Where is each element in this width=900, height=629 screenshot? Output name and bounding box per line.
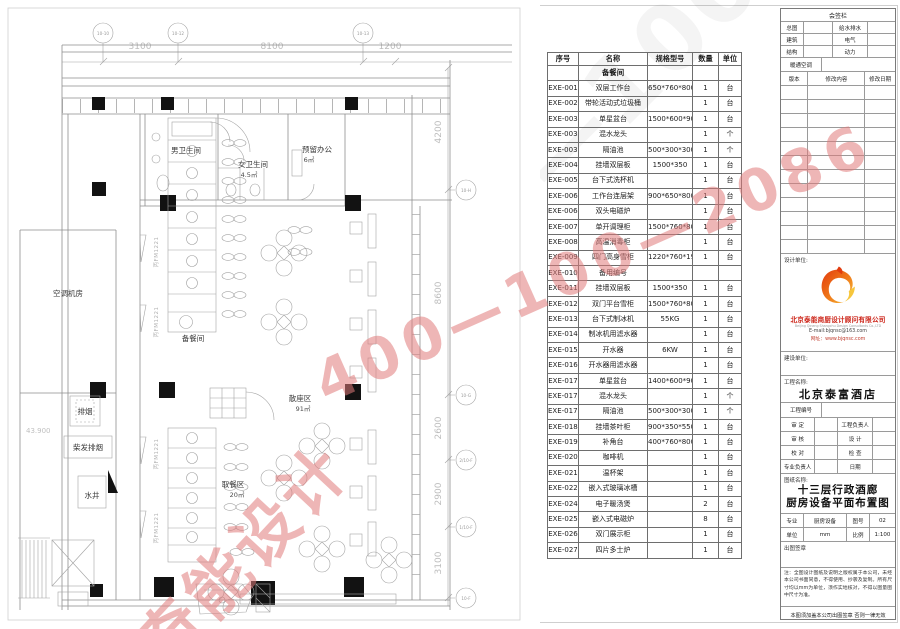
equipment-row: EXE-017单星盆台1400*600*9001台 bbox=[548, 373, 742, 388]
room-label-pantry: 备餐间 bbox=[182, 333, 205, 343]
revision-row bbox=[781, 100, 895, 114]
copyright-notes: 注：全图设计图纸及说明之版权属于本公司，未经本公司书面同意，不得使用、抄袭及复制… bbox=[784, 570, 892, 600]
client-label: 建设单位: bbox=[781, 352, 895, 362]
project-no-label: 工程编号 bbox=[781, 403, 822, 417]
equipment-row: 备餐间 bbox=[548, 66, 742, 81]
meta-row: 单位mm比例1:100 bbox=[781, 528, 895, 542]
revision-col-label: 版本 bbox=[781, 72, 808, 85]
revision-row bbox=[781, 240, 895, 254]
dim-label: 3100 bbox=[434, 551, 444, 574]
equipment-row: EXE-016开水器用滤水器1台 bbox=[548, 358, 742, 373]
equipment-row: EXE-024电子暖汤煲2台 bbox=[548, 496, 742, 511]
meta-row: 专业厨房设备图号02 bbox=[781, 514, 895, 528]
equipment-row: EXE-013台下式制冰机55KG1台 bbox=[548, 312, 742, 327]
dim-label: 2600 bbox=[434, 416, 444, 439]
revision-col-label: 修改日期 bbox=[865, 72, 895, 85]
table-header-row: 序号名称规格型号数量单位 bbox=[548, 53, 742, 66]
validity-text: 本图须加盖本公司出图签章 否则一律无效 bbox=[790, 612, 885, 619]
company-logo bbox=[781, 265, 895, 313]
fire-door-label: 丙FM1221 bbox=[153, 237, 160, 268]
equipment-row: EXE-006工作台连层架900*650*8001台 bbox=[548, 189, 742, 204]
equipment-row: EXE-005台下式洗杯机1台 bbox=[548, 173, 742, 188]
validity-row: 本图须加盖本公司出图签章 否则一律无效 bbox=[781, 607, 895, 623]
drawing-label: 图纸名称: bbox=[781, 474, 895, 484]
drawing-canvas: 10-10 10-12 10-13 3100 8100 1200 10-H 10… bbox=[0, 0, 900, 629]
structural-columns bbox=[90, 97, 364, 605]
seal-label: 出图签章 bbox=[781, 542, 895, 552]
floor-plan-drawing: 10-10 10-12 10-13 3100 8100 1200 10-H 10… bbox=[0, 0, 540, 629]
equipment-row: EXE-020咖啡机1台 bbox=[548, 450, 742, 465]
signoff-header: 会签栏 bbox=[781, 9, 895, 22]
signoff-row: 建筑电气 bbox=[781, 34, 895, 46]
revision-row bbox=[781, 128, 895, 142]
approval-row: 专业负责人日期 bbox=[781, 460, 895, 474]
dim-label: 1200 bbox=[379, 42, 402, 52]
dim-label: 4200 bbox=[434, 120, 444, 143]
schedule-col-header: 序号 bbox=[548, 53, 579, 66]
company-name-en: Beijing Qineng Shangchu Design Consultan… bbox=[787, 324, 890, 328]
revision-row bbox=[781, 170, 895, 184]
signoff-row: 结构动力 bbox=[781, 46, 895, 58]
equipment-row: EXE-007单开调理柜1500*760*8001台 bbox=[548, 219, 742, 234]
equipment-row: EXE-017b隔油池500*300*3001个 bbox=[548, 404, 742, 419]
room-label-office: 预留办公 bbox=[302, 144, 332, 154]
equipment-row: EXE-001双层工作台650*760*8001台 bbox=[548, 81, 742, 96]
schedule-col-header: 规格型号 bbox=[648, 53, 693, 66]
equipment-row: EXE-017a混水龙头1个 bbox=[548, 389, 742, 404]
signoff-row: 总图给水排水 bbox=[781, 22, 895, 34]
room-area-label: 20㎡ bbox=[230, 490, 245, 499]
signoff-rows: 总图给水排水建筑电气结构动力 bbox=[781, 22, 895, 58]
revision-row bbox=[781, 114, 895, 128]
design-unit-label: 设计单位: bbox=[781, 254, 895, 264]
schedule-col-header: 数量 bbox=[693, 53, 719, 66]
hvac-row: 暖通空调 bbox=[781, 58, 895, 72]
equipment-row: EXE-011挂墙双层板1500*3501台 bbox=[548, 281, 742, 296]
room-label-ac-room: 空调机房 bbox=[53, 288, 83, 298]
design-unit-section: 设计单位: 北京泰能商厨设计顾问有限公司 Beijing Qineng Shan… bbox=[781, 254, 895, 352]
dim-label: 2900 bbox=[434, 482, 444, 505]
fire-door-label: 丙FM1221 bbox=[153, 439, 160, 470]
notes-section: 注：全图设计图纸及说明之版权属于本公司，未经本公司书面同意，不得使用、抄袭及复制… bbox=[781, 568, 895, 607]
dim-label: 8600 bbox=[434, 281, 444, 304]
schedule-col-header: 单位 bbox=[719, 53, 742, 66]
equipment-row: EXE-003单星盆台1500*600*9001台 bbox=[548, 112, 742, 127]
equipment-row: EXE-019补角台400*760*8001台 bbox=[548, 435, 742, 450]
equipment-schedule-table: 序号名称规格型号数量单位 备餐间EXE-001双层工作台650*760*8001… bbox=[547, 52, 742, 559]
equipment-row: EXE-004挂墙双层板1500*3501台 bbox=[548, 158, 742, 173]
grid-bubble: 1/10-F bbox=[459, 525, 473, 530]
revision-row bbox=[781, 86, 895, 100]
revision-row bbox=[781, 184, 895, 198]
room-label-diesel-exhaust: 柴发排烟 bbox=[73, 442, 103, 452]
dim-label: 8100 bbox=[261, 42, 284, 52]
approval-row: 校 对检 查 bbox=[781, 446, 895, 460]
equipment-row: EXE-018挂墙茶叶柜900*350*5501台 bbox=[548, 419, 742, 434]
service-rooms: 空调机房 排烟 43.900 柴发排烟 水井 bbox=[18, 288, 112, 606]
equipment-row: EXE-027四片多士炉1台 bbox=[548, 543, 742, 558]
room-label-water-well: 水井 bbox=[85, 490, 100, 500]
room-label-smoke-exhaust: 排烟 bbox=[78, 406, 93, 416]
grid-bubble: 10-13 bbox=[357, 31, 370, 36]
equipment-row: EXE-015开水器6KW1台 bbox=[548, 343, 742, 358]
company-logo-icon bbox=[815, 265, 861, 311]
revision-col-label: 修改内容 bbox=[808, 72, 865, 85]
signoff-header-label: 会签栏 bbox=[829, 11, 847, 20]
revision-row bbox=[781, 226, 895, 240]
grid-bubble: 2/10-F bbox=[459, 458, 473, 463]
equipment-row: EXE-021温杯架1台 bbox=[548, 466, 742, 481]
fire-doors: 丙FM1221 丙FM1221 丙FM1221 丙FM1221 bbox=[140, 235, 160, 543]
drawing-title-section: 图纸名称: 十三层行政酒廊 厨房设备平面布置图 bbox=[781, 474, 895, 514]
room-area-label: 6㎡ bbox=[304, 155, 315, 164]
revision-row bbox=[781, 156, 895, 170]
approval-row: 审 定工程负责人 bbox=[781, 418, 895, 432]
toilet-block: 男卫生间 女卫生间 4.5㎡ 预留办公 6㎡ bbox=[152, 122, 332, 200]
project-section: 工程名称: 北京泰富酒店 bbox=[781, 376, 895, 403]
room-label-dining: 散座区 bbox=[289, 393, 312, 403]
room-label-womens-toilet: 女卫生间 bbox=[238, 159, 268, 169]
equipment-row: EXE-009四门高身雪柜1220*760*19551台 bbox=[548, 250, 742, 265]
revision-row bbox=[781, 212, 895, 226]
equipment-row: EXE-012双门平台雪柜1500*760*8001台 bbox=[548, 296, 742, 311]
grid-bubble: 10-12 bbox=[172, 31, 185, 36]
grid-top: 10-10 10-12 10-13 3100 8100 1200 bbox=[62, 23, 512, 65]
equipment-row: EXE-008高温消毒柜1台 bbox=[548, 235, 742, 250]
client-section: 建设单位: bbox=[781, 352, 895, 376]
room-label-pickup: 取餐区 bbox=[222, 480, 245, 489]
elevation-label: 43.900 bbox=[26, 427, 51, 435]
equipment-row: EXE-022嵌入式玻璃冰槽1台 bbox=[548, 481, 742, 496]
equipment-row: EXE-003b隔油池500*300*3001个 bbox=[548, 142, 742, 157]
revision-row bbox=[781, 198, 895, 212]
drawing-title-line1: 十三层行政酒廊 bbox=[781, 484, 895, 497]
revision-row bbox=[781, 142, 895, 156]
grid-bubble: 10-G bbox=[461, 393, 471, 398]
equipment-row: EXE-010备用编号 bbox=[548, 266, 742, 281]
revision-empty-rows bbox=[781, 86, 895, 254]
grid-bubble: 10-10 bbox=[97, 31, 110, 36]
company-email: E-mail:bjqnsc@163.com bbox=[781, 329, 895, 334]
company-name: 北京泰能商厨设计顾问有限公司 bbox=[781, 314, 895, 324]
equipment-row: EXE-014制冰机用滤水器1台 bbox=[548, 327, 742, 342]
title-block: 会签栏 总图给水排水建筑电气结构动力 暖通空调 版本 修改内容 修改日期 设计单… bbox=[780, 8, 896, 620]
dim-label: 3100 bbox=[129, 42, 152, 52]
approval-rows: 审 定工程负责人审 核设 计校 对检 查专业负责人日期 bbox=[781, 418, 895, 474]
room-area-label: 91㎡ bbox=[296, 404, 311, 413]
equipment-row: EXE-003a混水龙头1个 bbox=[548, 127, 742, 142]
equipment-row: EXE-002带轮活动式垃圾桶1台 bbox=[548, 96, 742, 111]
revision-header-row: 版本 修改内容 修改日期 bbox=[781, 72, 895, 86]
grid-bubble: 10-F bbox=[461, 596, 471, 601]
fire-door-label: 丙FM1221 bbox=[153, 513, 160, 544]
project-name: 北京泰富酒店 bbox=[781, 386, 895, 402]
approval-row: 审 核设 计 bbox=[781, 432, 895, 446]
drawing-title-line2: 厨房设备平面布置图 bbox=[781, 497, 895, 510]
equipment-row: EXE-006a双头电磁炉1台 bbox=[548, 204, 742, 219]
equipment-row: EXE-026双门展示柜1台 bbox=[548, 527, 742, 542]
meta-rows: 专业厨房设备图号02单位mm比例1:100 bbox=[781, 514, 895, 542]
seal-section: 出图签章 bbox=[781, 542, 895, 568]
equipment-row: EXE-025嵌入式电磁炉8台 bbox=[548, 512, 742, 527]
project-no-row: 工程编号 bbox=[781, 403, 895, 418]
room-area-label: 4.5㎡ bbox=[241, 170, 258, 179]
schedule-col-header: 名称 bbox=[579, 53, 648, 66]
grid-bubble: 10-H bbox=[461, 188, 471, 193]
fire-door-label: 丙FM1221 bbox=[153, 307, 160, 338]
hvac-label: 暖通空调 bbox=[781, 58, 822, 71]
room-label-mens-toilet: 男卫生间 bbox=[171, 145, 201, 155]
plan-sheet-border bbox=[8, 8, 520, 620]
grid-right: 10-H 10-G 2/10-F 1/10-F 10-F 4200 8600 2… bbox=[434, 64, 476, 608]
company-website: 网址：www.bjqnsc.com bbox=[781, 335, 895, 342]
project-label: 工程名称: bbox=[781, 376, 895, 386]
